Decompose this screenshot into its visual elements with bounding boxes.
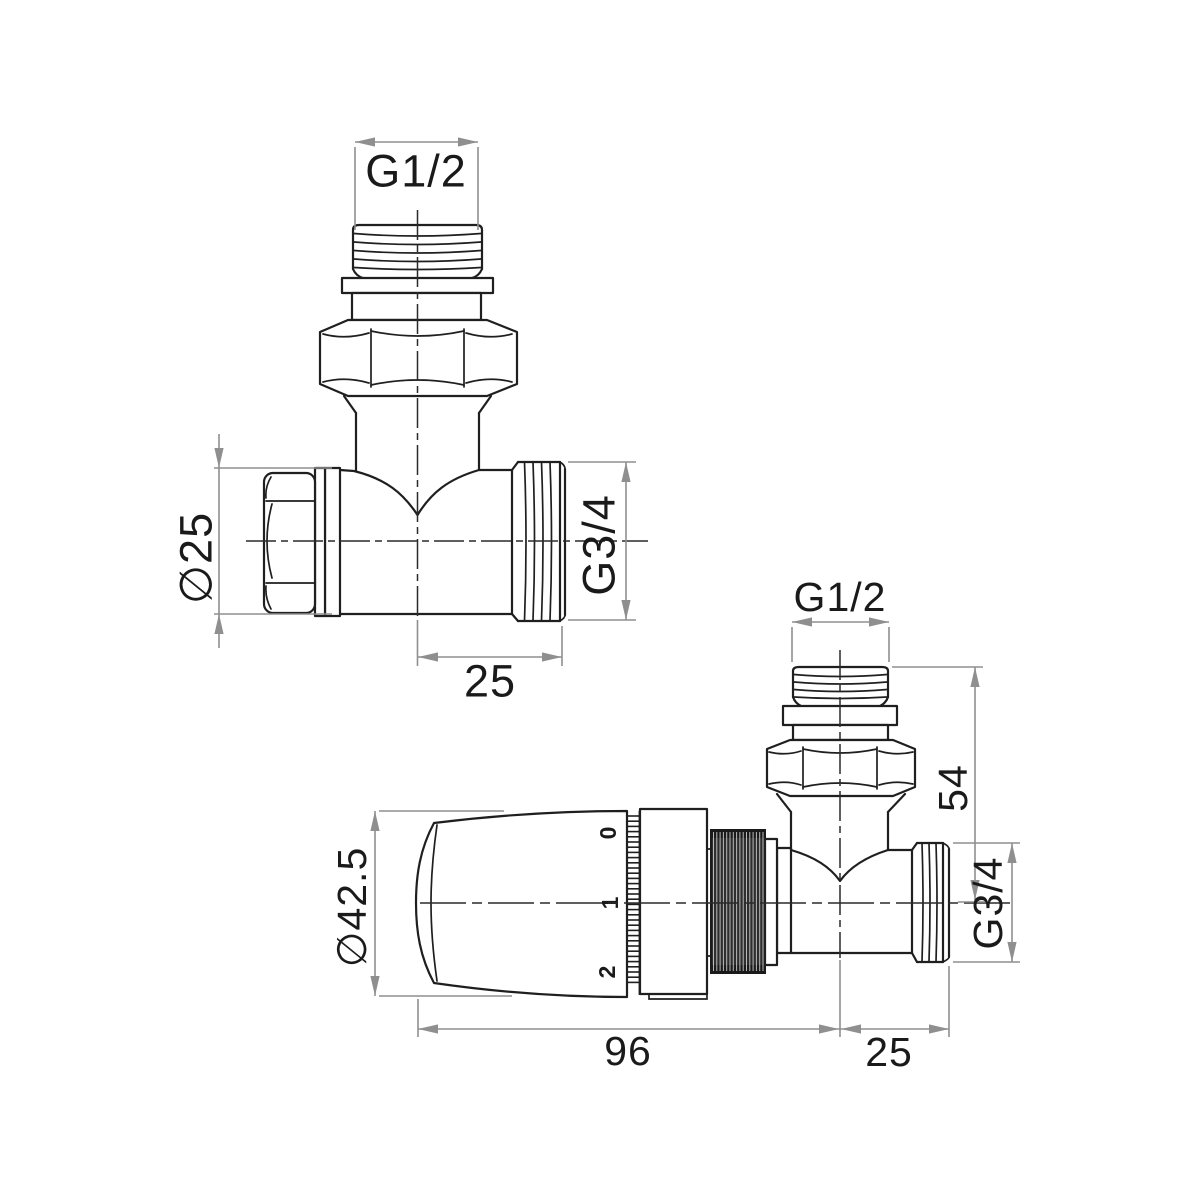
dim-label-valve1-side-thread: G3/4	[574, 494, 625, 596]
knurled-nut	[711, 830, 765, 973]
thermostatic-head: 0 1 2	[416, 809, 777, 999]
dim-label-valve2-side-thread: G3/4	[965, 857, 1011, 950]
head-scale-mark-0: 0	[595, 827, 621, 840]
dim-label-valve2-height: 54	[930, 764, 976, 812]
dim-label-valve1-top-thread: G1/2	[365, 146, 467, 197]
head-step-ring	[765, 839, 777, 965]
dim-label-valve2-top-thread: G1/2	[794, 574, 887, 620]
head-scale-mark-2: 2	[594, 966, 620, 979]
valve1-left-cap	[264, 468, 340, 616]
head-collar	[640, 809, 707, 994]
technical-drawing-canvas: G1/2 ∅25 G3/4 25	[0, 0, 1200, 1200]
dim-label-valve1-port-length: 25	[464, 656, 516, 707]
dim-label-valve2-port-length: 25	[865, 1029, 913, 1075]
dim-label-valve2-head-diameter: ∅42.5	[329, 847, 375, 968]
valve1-neck	[352, 293, 481, 320]
technical-drawing-page: G1/2 ∅25 G3/4 25	[0, 0, 1200, 1200]
dim-label-valve2-total-length: 96	[604, 1028, 652, 1074]
dim-label-valve1-cap-diameter: ∅25	[171, 512, 222, 604]
